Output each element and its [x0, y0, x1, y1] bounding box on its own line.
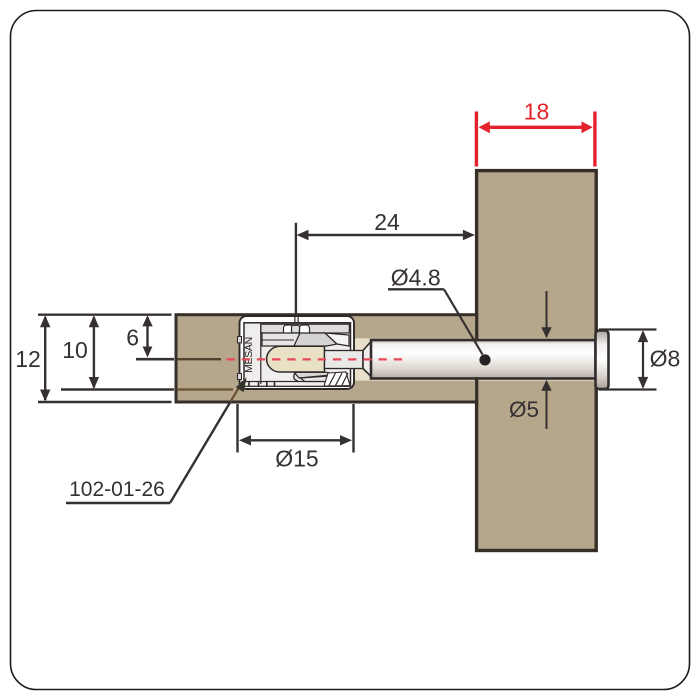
svg-text:MESAN: MESAN [243, 337, 255, 373]
svg-text:Ø4.8: Ø4.8 [391, 265, 441, 291]
svg-text:6: 6 [126, 325, 139, 351]
svg-text:Ø8: Ø8 [650, 346, 681, 372]
svg-text:12: 12 [15, 346, 41, 372]
svg-text:Ø15: Ø15 [275, 446, 318, 472]
svg-text:10: 10 [62, 337, 88, 363]
svg-text:18: 18 [524, 99, 550, 125]
svg-text:Ø5: Ø5 [509, 397, 539, 422]
svg-text:102-01-26: 102-01-26 [69, 478, 165, 501]
svg-text:24: 24 [374, 209, 400, 235]
